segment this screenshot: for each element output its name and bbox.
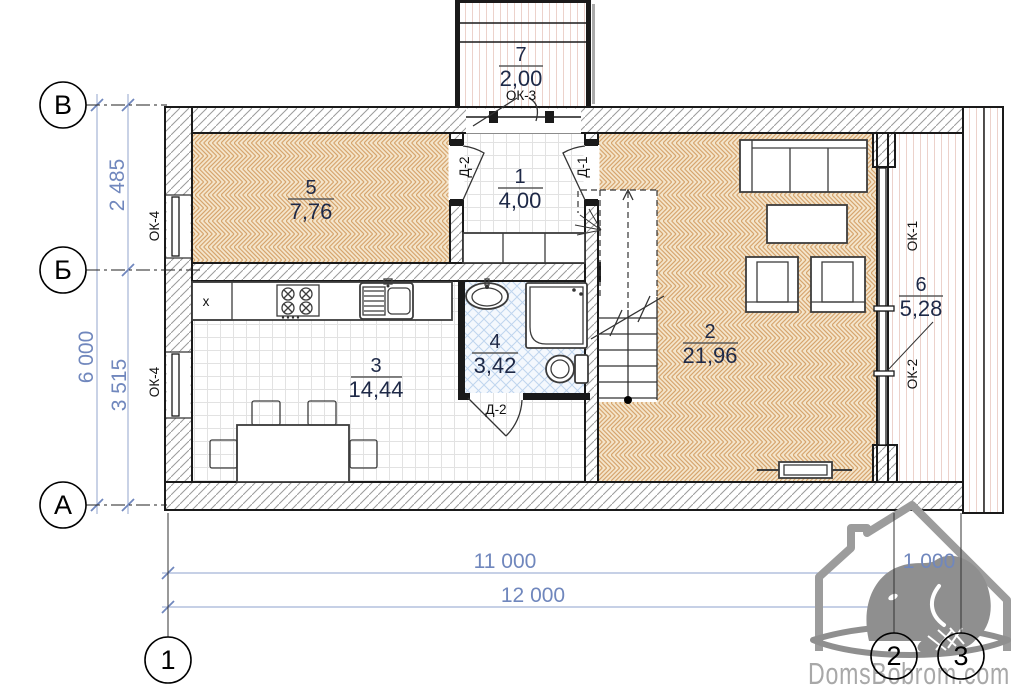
window-tag-ok4-upper: ОК-4	[147, 210, 162, 241]
dim-bottom-terrace: 1 000	[903, 550, 956, 573]
armchair	[811, 257, 865, 312]
room-4-number: 4	[489, 331, 500, 353]
room-5-number: 5	[305, 177, 316, 199]
room-7-number: 7	[515, 44, 526, 66]
interior-wall-b	[192, 263, 600, 281]
door-d2-jamb-top	[450, 139, 463, 146]
dim-left-bottom: 3 515	[108, 359, 131, 412]
dining-table	[237, 425, 349, 482]
axis-label-1: 1	[160, 645, 175, 675]
door-d1-jamb-top	[585, 139, 598, 146]
floor-plan-page: DomsBobrom.com В Б А 1 2 3 2 485 6 000 3…	[0, 0, 1016, 697]
watermark-logo: DomsBobrom.com	[808, 505, 1010, 691]
sofa	[740, 140, 867, 192]
door-tag-d1: Д-1	[575, 156, 590, 177]
window-tag-ok1: ОК-1	[905, 221, 920, 251]
dim-bottom-overall: 12 000	[501, 584, 565, 607]
room-1-number: 1	[514, 166, 525, 188]
window-ok1-frame	[879, 168, 886, 306]
kitchen-sink-icon	[360, 279, 413, 319]
room-2-number: 2	[704, 321, 715, 343]
entry-door-opening	[466, 109, 581, 134]
window-sill-ok1	[874, 306, 894, 311]
terrace-edge-band	[963, 107, 1003, 513]
toilet-icon	[546, 355, 588, 383]
armchair	[746, 257, 798, 312]
left-wall	[165, 107, 192, 510]
axis-label-b: Б	[54, 255, 72, 285]
room-4-area: 3,42	[474, 353, 517, 378]
door-tag-d2-hall: Д-2	[457, 156, 472, 177]
door-d1-jamb-bottom	[585, 199, 598, 206]
window-tag-ok3: ОК-3	[506, 88, 536, 103]
door-d2-jamb-bottom	[450, 199, 463, 206]
bath-left-partition	[458, 281, 465, 400]
wardrobe	[463, 233, 585, 263]
axis-label-3: 3	[953, 641, 968, 671]
room-5-parquet-floor	[192, 133, 450, 263]
coffee-table	[767, 205, 847, 243]
window-ok2-frame	[879, 311, 886, 445]
axis-label-2: 2	[886, 641, 901, 671]
room-6-number: 6	[915, 274, 926, 296]
bottom-wall	[165, 482, 963, 510]
dim-left-overall: 6 000	[75, 331, 98, 384]
room-5-area: 7,76	[290, 199, 333, 224]
porch-left-wall	[455, 0, 460, 107]
window-ok4-upper-frame	[172, 197, 179, 256]
porch-shadow	[592, 4, 595, 104]
window-ok4-lower-frame	[172, 354, 179, 416]
room-1-area: 4,00	[499, 188, 542, 213]
porch-top-edge	[455, 0, 591, 3]
floor-plan-canvas: DomsBobrom.com В Б А 1 2 3 2 485 6 000 3…	[0, 0, 1016, 697]
hall-furniture	[463, 233, 585, 263]
window-tag-ok4-lower: ОК-4	[147, 366, 162, 397]
room-2-area: 21,96	[682, 343, 737, 368]
room-3-area: 14,44	[348, 377, 403, 402]
entry-door-jamb-right	[545, 111, 554, 123]
stair-start-dot	[624, 396, 632, 404]
dim-left-top: 2 485	[106, 159, 129, 212]
bath-bottom-partition-right	[523, 393, 590, 400]
shower-icon	[526, 283, 587, 348]
room-3-number: 3	[370, 355, 381, 377]
porch-right-wall	[586, 0, 591, 107]
axis-label-a: А	[54, 490, 72, 520]
door-tag-d2-bath: Д-2	[485, 402, 506, 417]
axis-label-v: В	[54, 90, 72, 120]
window-tag-ok2: ОК-2	[905, 359, 920, 389]
fridge-mark: х	[203, 294, 210, 309]
room-6-area: 5,28	[900, 296, 943, 321]
dim-bottom-main: 11 000	[474, 550, 537, 573]
window-sill-ok2	[874, 371, 894, 376]
